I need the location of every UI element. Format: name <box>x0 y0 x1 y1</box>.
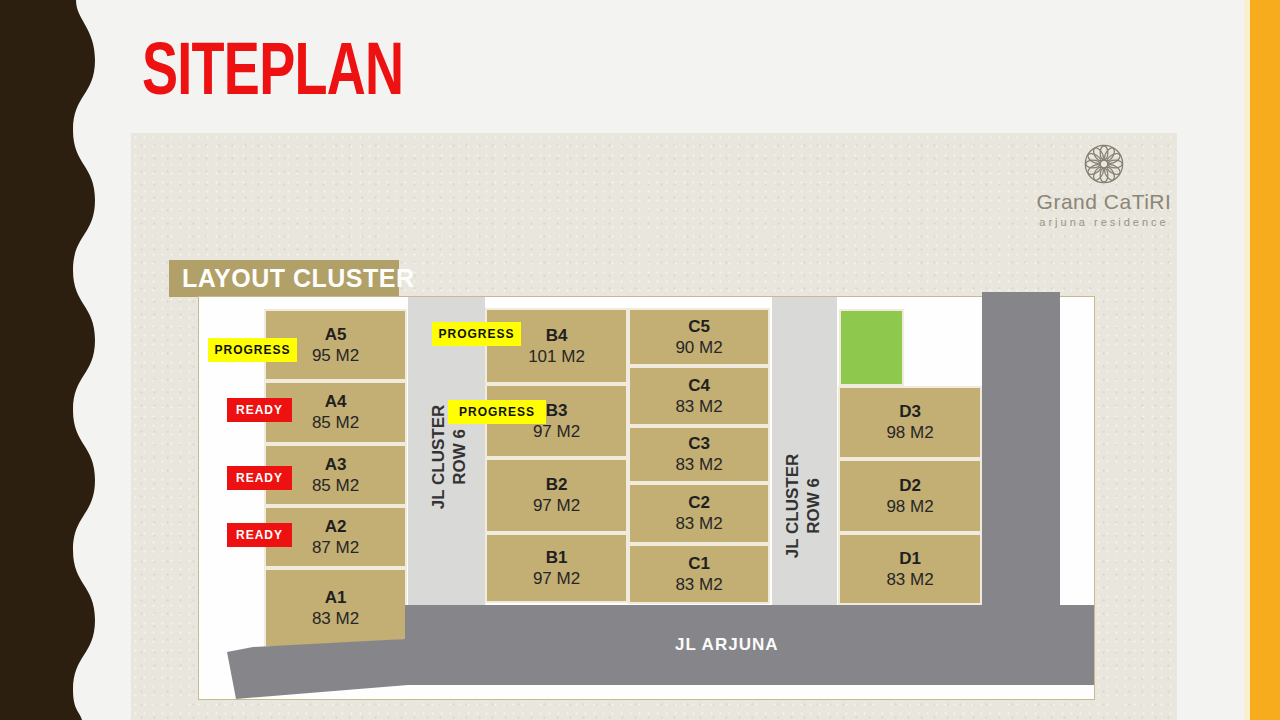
unit-id: B2 <box>546 475 568 495</box>
brand-logo: Grand CaTiRI arjuna residence <box>1029 141 1179 228</box>
unit-id: D2 <box>899 476 921 496</box>
unit-area: 98 M2 <box>886 422 933 443</box>
rosette-icon <box>1081 141 1127 187</box>
unit-block-b1: B1 97 M2 <box>485 533 628 603</box>
brand-tagline: arjuna residence <box>1029 216 1179 228</box>
unit-block-d1: D1 83 M2 <box>838 533 982 605</box>
green-area-block <box>839 309 904 386</box>
status-badge-progress-b4: PROGRESS <box>432 322 521 346</box>
right-orange-strip <box>1250 0 1280 720</box>
unit-id: B3 <box>546 401 568 421</box>
unit-block-b2: B2 97 M2 <box>485 458 628 533</box>
unit-area: 95 M2 <box>312 345 359 366</box>
unit-id: A1 <box>325 588 347 608</box>
unit-block-a1: A1 83 M2 <box>264 568 407 648</box>
siteplan-canvas: A5 95 M2 A4 85 M2 A3 85 M2 A2 87 M2 A1 8… <box>198 296 1095 700</box>
unit-id: A3 <box>325 455 347 475</box>
unit-area: 83 M2 <box>675 454 722 475</box>
unit-block-b4: B4 101 M2 <box>485 308 628 384</box>
layout-cluster-banner: LAYOUT CLUSTER <box>169 260 399 297</box>
unit-area: 83 M2 <box>886 569 933 590</box>
status-badge-progress-a5: PROGRESS <box>208 338 297 362</box>
unit-id: C1 <box>688 554 710 574</box>
unit-block-d3: D3 98 M2 <box>838 386 982 459</box>
unit-id: D1 <box>899 549 921 569</box>
unit-block-c2: C2 83 M2 <box>628 483 770 544</box>
unit-block-c1: C1 83 M2 <box>628 544 770 604</box>
unit-area: 85 M2 <box>312 475 359 496</box>
unit-id: D3 <box>899 402 921 422</box>
unit-id: C5 <box>688 317 710 337</box>
unit-id: A5 <box>325 325 347 345</box>
unit-area: 83 M2 <box>312 608 359 629</box>
brand-name: Grand CaTiRI <box>1029 190 1179 214</box>
unit-area: 83 M2 <box>675 513 722 534</box>
unit-id: B4 <box>546 326 568 346</box>
road-jl-cluster-row6-right <box>772 297 837 605</box>
unit-area: 83 M2 <box>675 396 722 417</box>
unit-area: 85 M2 <box>312 412 359 433</box>
road-label-line1: JL CLUSTER <box>782 454 803 559</box>
unit-area: 97 M2 <box>533 568 580 589</box>
road-jl-arjuna-label: JL ARJUNA <box>675 635 778 655</box>
unit-area: 90 M2 <box>675 337 722 358</box>
unit-id: C2 <box>688 493 710 513</box>
unit-id: C3 <box>688 434 710 454</box>
unit-area: 87 M2 <box>312 537 359 558</box>
road-label-line2: ROW 6 <box>803 454 824 559</box>
slide: { "slide": { "title": "SITEPLAN" }, "log… <box>0 0 1280 720</box>
unit-block-c4: C4 83 M2 <box>628 366 770 426</box>
unit-id: B1 <box>546 548 568 568</box>
unit-block-c5: C5 90 M2 <box>628 308 770 366</box>
unit-block-d2: D2 98 M2 <box>838 459 982 533</box>
road-jl-cluster-row6-right-label: JL CLUSTER ROW 6 <box>782 454 824 559</box>
status-badge-ready-a4: READY <box>227 398 292 422</box>
unit-area: 101 M2 <box>528 346 585 367</box>
unit-area: 83 M2 <box>675 574 722 595</box>
status-badge-ready-a2: READY <box>227 523 292 547</box>
left-wave-decoration <box>0 0 110 720</box>
unit-id: C4 <box>688 376 710 396</box>
status-badge-ready-a3: READY <box>227 466 292 490</box>
unit-area: 97 M2 <box>533 495 580 516</box>
slide-title: SITEPLAN <box>142 30 403 108</box>
unit-area: 98 M2 <box>886 496 933 517</box>
road-vertical-dark-strip <box>982 292 1060 605</box>
unit-id: A2 <box>325 517 347 537</box>
road-label-line1: JL CLUSTER <box>428 405 449 510</box>
unit-block-c3: C3 83 M2 <box>628 426 770 483</box>
status-badge-progress-b3: PROGRESS <box>448 400 546 424</box>
unit-id: A4 <box>325 392 347 412</box>
